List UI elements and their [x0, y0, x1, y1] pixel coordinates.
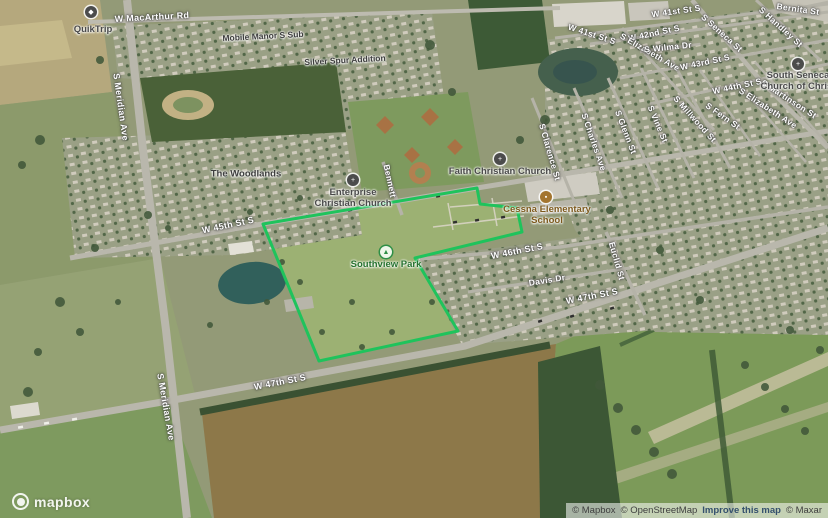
attribution-improve-link[interactable]: Improve this map	[702, 505, 781, 516]
church-icon-faith: +	[494, 153, 506, 165]
church-icon-enterprise: +	[347, 174, 359, 186]
attribution-osm-link[interactable]: © OpenStreetMap	[621, 505, 698, 516]
church-icon-south-seneca: +	[792, 58, 804, 70]
park-icon-southview: ▲	[380, 246, 392, 258]
church-glyph: +	[796, 61, 800, 68]
satellite-imagery	[0, 0, 828, 518]
attribution-mapbox-link[interactable]: © Mapbox	[572, 505, 615, 516]
quiktrip-store-icon: ◆	[85, 6, 97, 18]
attribution-bar: © Mapbox © OpenStreetMap Improve this ma…	[566, 503, 828, 518]
church-glyph: +	[351, 177, 355, 184]
store-glyph: ◆	[88, 9, 93, 16]
attribution-maxar: © Maxar	[786, 505, 822, 516]
mapbox-logo-text: mapbox	[34, 494, 90, 510]
map-canvas[interactable]: W MacArthur Rd S Meridian Ave S Meridian…	[0, 0, 828, 518]
tree-glyph: ▲	[383, 249, 390, 256]
church-glyph: +	[498, 156, 502, 163]
mapbox-logo-link[interactable]: mapbox	[12, 493, 90, 510]
mapbox-logo-icon	[12, 493, 29, 510]
school-glyph: ▪	[545, 194, 547, 201]
school-icon-cessna: ▪	[540, 191, 552, 203]
